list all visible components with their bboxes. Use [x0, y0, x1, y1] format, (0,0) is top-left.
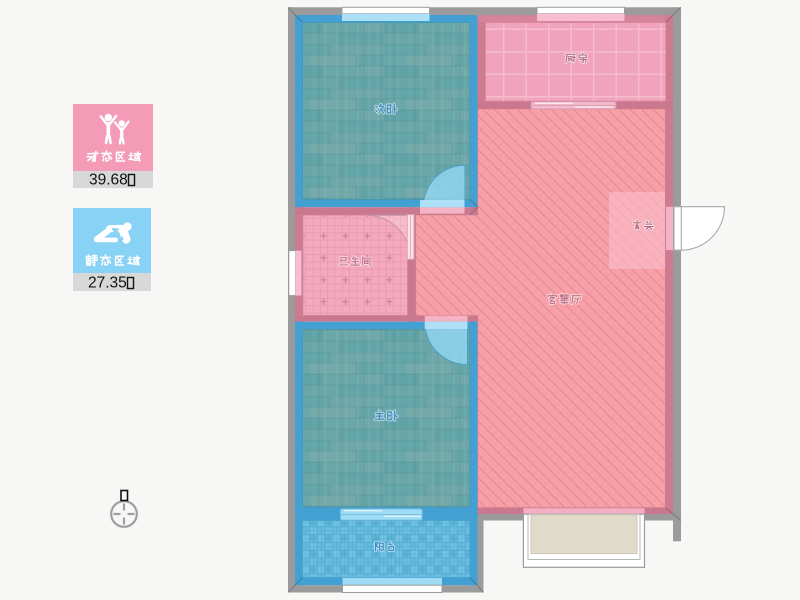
svg-text:39.68: 39.68: [89, 172, 128, 189]
svg-text:27.35: 27.35: [88, 275, 127, 292]
